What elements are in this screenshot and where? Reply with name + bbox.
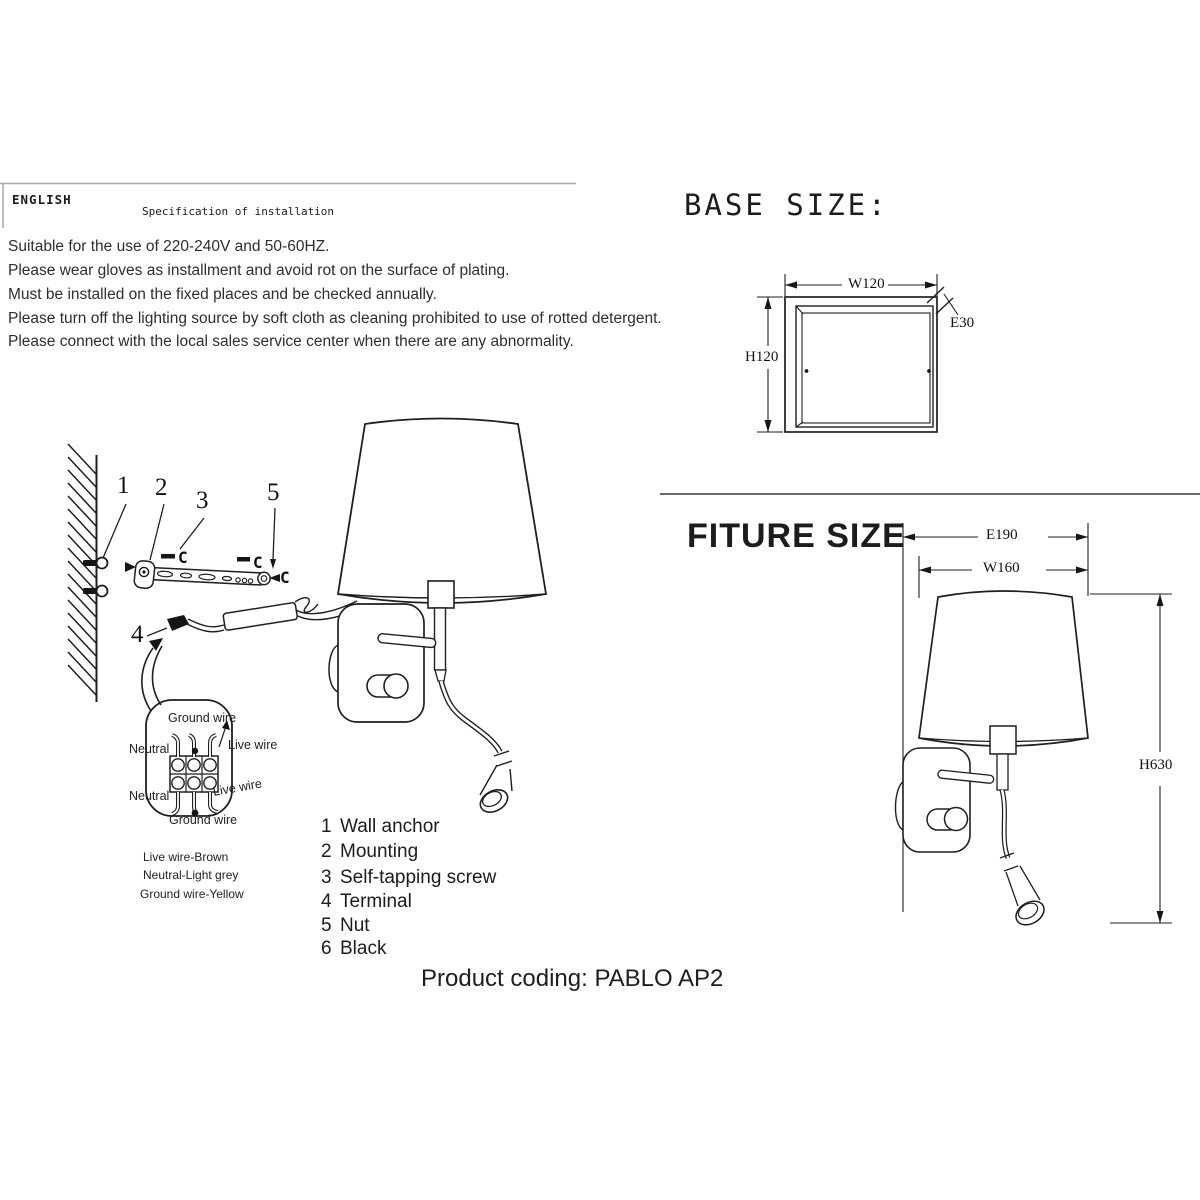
list-item: 2Mounting	[321, 842, 418, 863]
note-line: Suitable for the use of 220-240V and 50-…	[8, 238, 329, 255]
wire-key-live: Live wire-Brown	[143, 851, 228, 864]
base-width-dim: W120	[845, 276, 888, 293]
base-size-heading: BASE SIZE:	[684, 190, 889, 222]
ground-wire-top-label: Ground wire	[168, 712, 236, 726]
note-line: Please connect with the local sales serv…	[8, 333, 574, 350]
clip-symbol-left: C	[178, 549, 188, 567]
neutral-top-label: Neutral	[129, 743, 169, 757]
list-item: 4Terminal	[321, 892, 412, 913]
clip-symbol-right: C	[280, 569, 290, 587]
callout-3: 3	[196, 487, 209, 515]
wire-key-ground: Ground wire-Yellow	[140, 888, 244, 901]
callout-2: 2	[155, 474, 168, 502]
wall-hatch-drawing	[68, 444, 97, 702]
live-wire-top-label: Live wire	[228, 739, 277, 753]
product-coding: Product coding: PABLO AP2	[421, 966, 723, 992]
page-title: Specification of installation	[142, 206, 334, 218]
fixture-lamp-drawing	[895, 591, 1088, 930]
wall-lamp-drawing	[329, 419, 546, 817]
list-item: 3Self-tapping screw	[321, 868, 496, 889]
instruction-sheet: ENGLISH Specification of installation Su…	[0, 0, 1200, 1200]
callout-5: 5	[267, 479, 280, 507]
fixture-width-dim: W160	[980, 560, 1023, 577]
note-line: Please turn off the lighting source by s…	[8, 310, 662, 327]
base-edge-dim: E30	[947, 315, 977, 332]
diagram-artwork	[0, 0, 1200, 1200]
base-height-dim: H120	[742, 349, 781, 366]
list-item: 5Nut	[321, 916, 370, 937]
neutral-bottom-label: Neutral	[129, 790, 169, 804]
callout-1: 1	[117, 472, 130, 500]
callout-4: 4	[131, 621, 144, 649]
terminal-cable-drawing	[142, 598, 360, 711]
fixture-height-dim: H630	[1136, 757, 1175, 774]
wire-key-neutral: Neutral-Light grey	[143, 869, 238, 882]
note-line: Must be installed on the fixed places an…	[8, 286, 437, 303]
fixture-extension-dim: E190	[983, 527, 1021, 544]
language-label: ENGLISH	[12, 193, 72, 207]
ground-wire-bottom-label: Ground wire	[169, 814, 237, 828]
clip-symbol-mid: C	[253, 554, 263, 572]
fixture-size-heading: FITURE SIZE	[687, 518, 906, 555]
list-item: 1Wall anchor	[321, 817, 440, 838]
list-item: 6Black	[321, 939, 386, 960]
note-line: Please wear gloves as installment and av…	[8, 262, 509, 279]
base-size-drawing	[757, 274, 958, 432]
